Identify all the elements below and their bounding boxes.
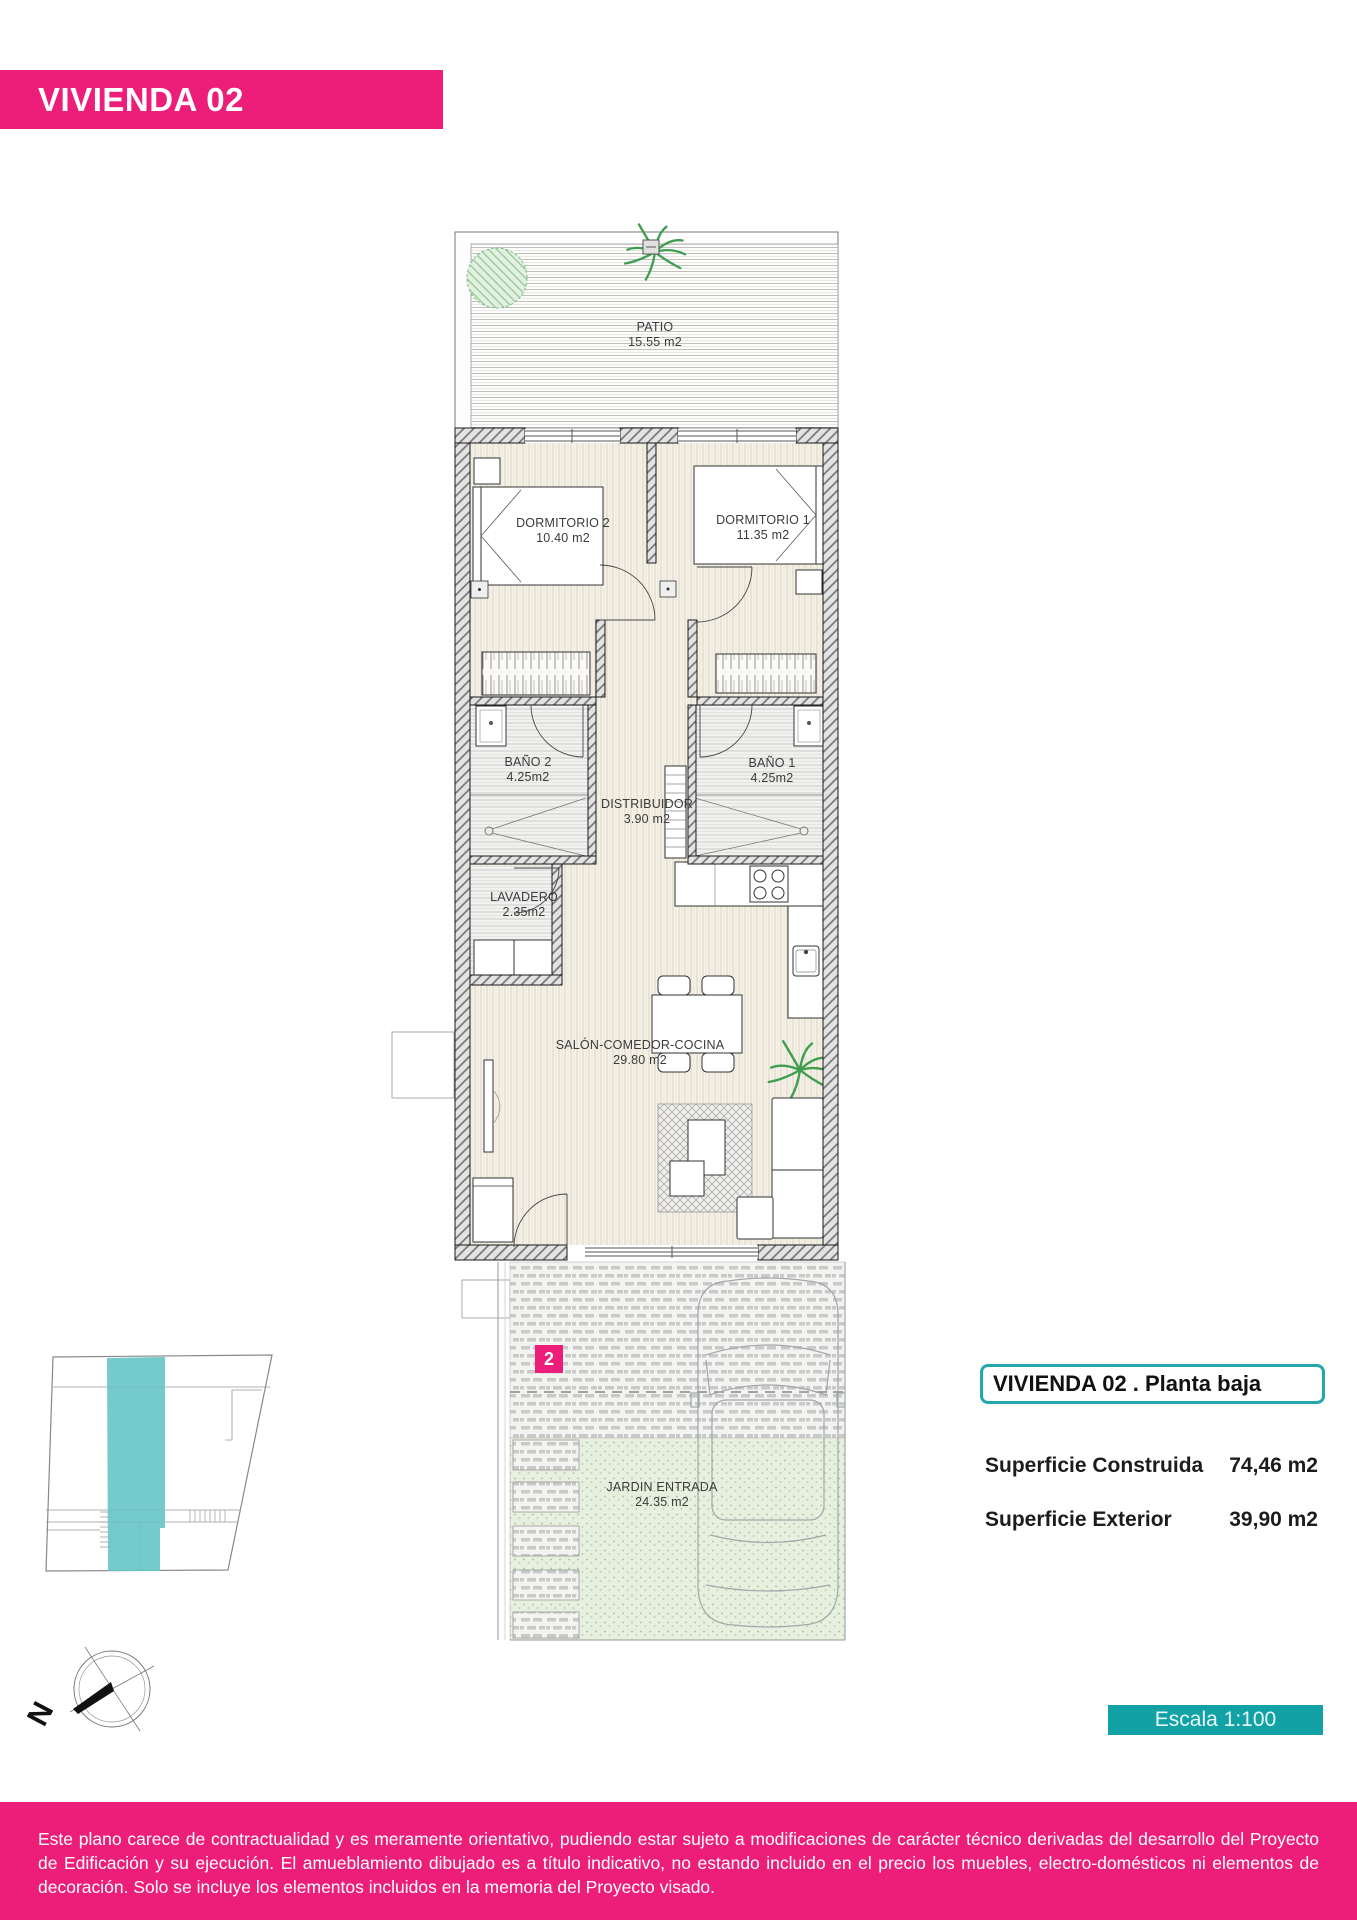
plan-sheet: N VIVIENDA 02 PATIO15.55 m2 DORMITORIO 2… [0,0,1357,1920]
minimap-unit-highlight [107,1357,165,1571]
disclaimer-text: Este plano carece de contractualidad y e… [38,1827,1319,1899]
patio-tree [467,248,527,308]
side-table [670,1161,704,1196]
info-panel-title-box: VIVIENDA 02 . Planta baja [980,1364,1325,1404]
room-label-patio: PATIO15.55 m2 [628,320,682,350]
sideboard [473,1178,513,1242]
nightstand-d1 [796,570,822,594]
laundry-appliances [474,940,554,978]
wardrobe-d1 [716,654,816,693]
room-label-bano2: BAÑO 24.25m2 [504,755,551,785]
site-minimap [46,1355,272,1571]
room-label-dormitorio2: DORMITORIO 210.40 m2 [516,516,610,546]
superficie-exterior-row: Superficie Exterior 39,90 m2 [985,1507,1318,1533]
page-title-bar: VIVIENDA 02 [0,70,443,129]
superficie-construida-value: 74,46 m2 [1229,1453,1318,1479]
floor-plan-svg: N [0,0,1357,1920]
sink-bath1 [794,706,824,746]
room-label-jardin: JARDIN ENTRADA24.35 m2 [606,1480,717,1510]
page-title: VIVIENDA 02 [0,70,443,129]
room-label-salon: SALÓN-COMEDOR-COCINA29.80 m2 [556,1038,725,1068]
scale-badge: Escala 1:100 [1108,1705,1323,1735]
wardrobe-d2 [482,652,590,695]
superficie-construida-row: Superficie Construida 74,46 m2 [985,1453,1318,1479]
sink-bath2 [476,706,506,746]
north-compass: N [21,1647,154,1731]
room-label-bano1: BAÑO 14.25m2 [748,756,795,786]
room-label-lavadero: LAVADERO2.35m2 [490,890,558,920]
nightstand-d2 [474,458,500,484]
superficie-construida-label: Superficie Construida [985,1453,1203,1479]
room-label-distribuidor: DISTRIBUIDOR3.90 m2 [601,797,693,827]
disclaimer-bar: Este plano carece de contractualidad y e… [0,1802,1357,1920]
tv-unit [484,1060,493,1152]
compass-n-label: N [21,1697,60,1732]
room-label-dormitorio1: DORMITORIO 111.35 m2 [716,513,810,543]
info-panel-title: VIVIENDA 02 . Planta baja [983,1367,1322,1401]
superficie-exterior-value: 39,90 m2 [1229,1507,1318,1533]
superficie-exterior-label: Superficie Exterior [985,1507,1172,1533]
unit-number-badge: 2 [535,1345,563,1373]
ac-niche [392,1032,454,1098]
porch-utility [462,1280,510,1318]
